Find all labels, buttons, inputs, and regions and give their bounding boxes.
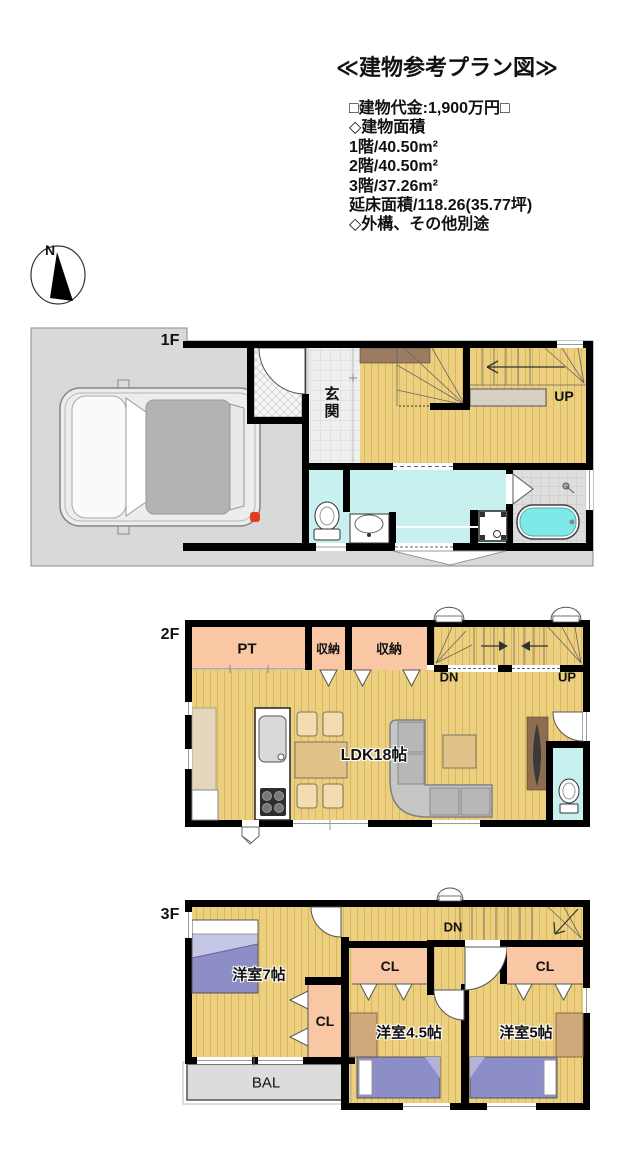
wall-top-2f [185,620,590,627]
room-label-closet1: 収納 [316,643,340,655]
closet-label-mid: CL [381,959,400,973]
stair-label-dn-3f: DN [444,921,463,934]
room-label-genkan: 玄関 [324,386,339,420]
floor-label-2f: 2F [161,627,180,643]
wall-bedrooms-bottom [348,1103,590,1110]
sink-icon-1f [350,514,389,543]
info-line-1f: 1階/40.50m² [349,138,532,157]
car-icon [60,380,260,534]
floor-plan-page: ≪建物参考プラン図≫ □建物代金:1,900万円□ ◇建物面積 1階/40.50… [0,0,640,1159]
bed-room45 [357,1057,440,1098]
info-line-area: ◇建物面積 [349,118,532,137]
desk-room45 [350,1013,377,1057]
stairhall-wood-2f [434,627,583,670]
floor-label-3f: 3F [161,907,180,923]
north-compass-icon [28,240,92,308]
floor-label-1f: 1F [161,333,180,349]
info-line-total: 延床面積/118.26(35.77坪) [349,196,532,215]
stair-label-dn-2f: DN [440,671,459,684]
toilet-icon-2f [559,779,579,813]
closet-label-right: CL [536,959,555,973]
room-label-pt: PT [237,642,256,657]
wall-under-stairs-3f [427,940,590,947]
floor-plan-2f [180,600,616,848]
info-line-2f: 2階/40.50m² [349,157,532,176]
under-stair-cabinet [470,389,546,406]
desk-room5 [556,1013,583,1057]
wall-top-1f [183,341,593,348]
washer-pan-icon [479,511,507,541]
wall-porch-bottom [247,417,309,424]
bathtub-icon [517,505,579,539]
vent-half-round-3f [437,888,463,901]
kitchen-unit [255,708,290,820]
room-label-ldk: LDK18帖 [341,748,408,764]
wall-toilet-top-2f [546,741,590,748]
wall-mid-vertical-3f [341,937,349,1110]
info-line-price: □建物代金:1,900万円□ [349,99,532,118]
page-title: ≪建物参考プラン図≫ [336,50,558,82]
wall-porch-left [247,341,254,424]
fridge [192,790,218,820]
wall-toilet-left-2f [546,741,553,827]
room-label-closet2: 収納 [376,643,402,656]
info-line-3f: 3階/37.26m² [349,177,532,196]
room-label-room7: 洋室7帖 [232,968,285,983]
compass-north-label: N [45,243,55,257]
tv-board [527,717,548,790]
bed-room5 [470,1057,557,1098]
wall-left-2f [185,620,192,827]
info-line-note: ◇外構、その他別途 [349,215,532,234]
floor-plan-3f [180,882,616,1112]
wall-bottom-1f [183,543,593,551]
room-label-room5: 洋室5帖 [499,1026,552,1041]
closet-label-left: CL [316,1014,335,1028]
building-info: □建物代金:1,900万円□ ◇建物面積 1階/40.50m² 2階/40.50… [349,99,532,235]
ldk-wood-floor [192,670,583,820]
vent-half-round-left [434,607,464,622]
stair-label-up-1f: UP [554,389,573,403]
stair-label-up-2f: UP [558,671,576,684]
shoe-cabinet [360,348,430,363]
vent-half-round-right [551,607,581,622]
side-table [443,735,476,768]
balcony-label: BAL [252,1076,280,1091]
counter-left [192,708,216,790]
wall-right-1f [586,341,593,551]
toilet-icon-1f [314,502,340,540]
room-label-room45: 洋室4.5帖 [376,1026,442,1041]
wall-top-3f [185,900,590,907]
wall-stair-stub [463,341,470,408]
floor-plan-1f [28,326,616,572]
